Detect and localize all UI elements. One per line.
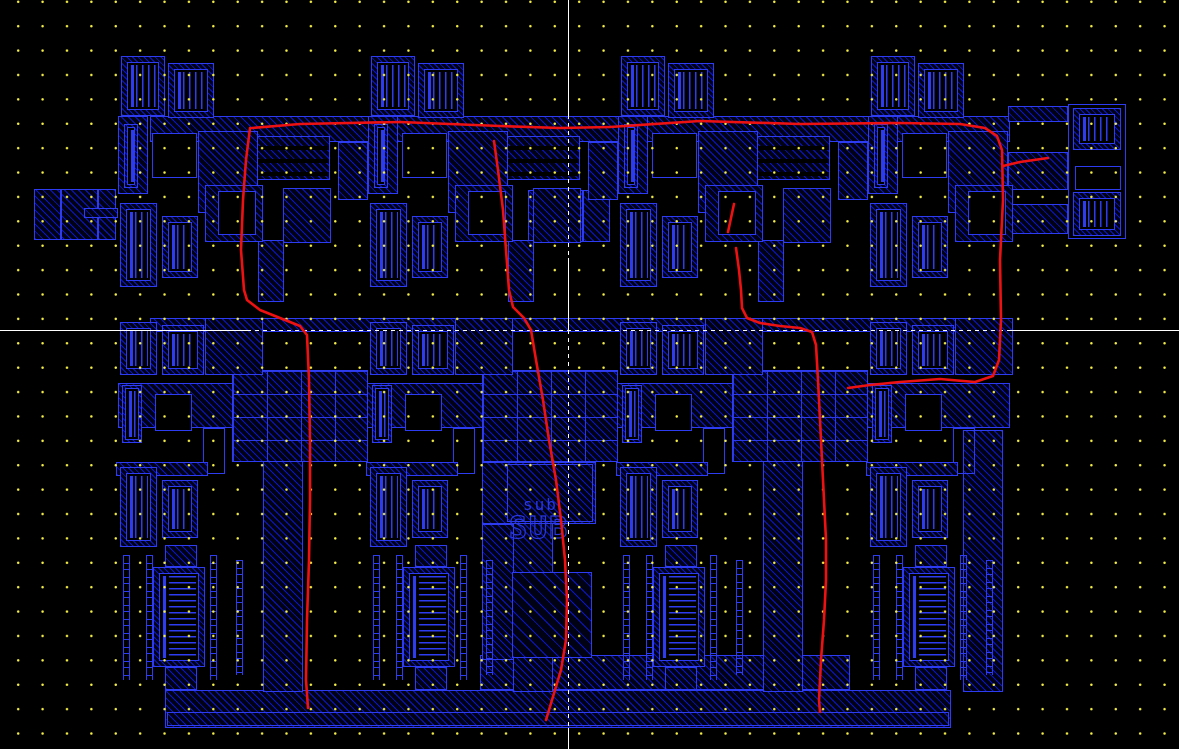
- layout-shape-combV: [418, 63, 464, 118]
- layout-shape-hatch: [783, 188, 831, 243]
- layout-shape-hatch: [1008, 106, 1068, 122]
- layout-shape-dashcol: [146, 555, 153, 680]
- layout-shape-combV: [162, 216, 198, 278]
- layout-shape-busGrid: [482, 370, 618, 462]
- layout-shape-hatch: [338, 142, 368, 200]
- layout-shape-dashcol: [210, 555, 217, 680]
- layout-shape-hatch: [455, 318, 513, 375]
- layout-shape-hatch: [415, 667, 447, 690]
- layout-shape-hatch: [1008, 204, 1068, 234]
- layout-shape-dashcol: [623, 555, 630, 680]
- layout-shape-hatch: [1008, 152, 1068, 190]
- layout-shape-combV: [412, 325, 454, 375]
- layout-shape-combV: [918, 63, 964, 118]
- layout-shape-hatch: [84, 208, 118, 218]
- layout-shape-busGrid: [232, 370, 368, 462]
- layout-shape-combV: [1073, 192, 1121, 236]
- layout-shape-hatch: [915, 667, 947, 690]
- layout-shape-dashcol: [960, 555, 967, 680]
- layout-shape-combV: [168, 63, 214, 118]
- layout-shape-combV: [870, 322, 907, 375]
- layout-shape-combH: [903, 567, 955, 667]
- layout-shape-hatch: [205, 318, 263, 375]
- layout-shape-black: [652, 133, 697, 178]
- crosshair-vertical-segment: [568, 728, 569, 749]
- layout-shape-hatch: [955, 318, 1013, 375]
- layout-shape-hatch: [838, 142, 868, 200]
- layout-shape-combV: [662, 480, 698, 538]
- layout-shape-hatch: [665, 545, 697, 567]
- layout-shape-hatch: [258, 240, 284, 302]
- layout-shape-black: [655, 394, 692, 431]
- layout-shape-dashcol: [486, 560, 493, 675]
- layout-shape-combV: [621, 56, 665, 116]
- layout-shape-hatch: [763, 430, 803, 692]
- layout-shape-hatch: [758, 240, 784, 302]
- layout-shape-dashcol: [646, 555, 653, 680]
- layout-shape-combV: [120, 203, 157, 287]
- layout-shape-combH: [403, 567, 455, 667]
- layout-shape-combVn: [874, 124, 888, 188]
- layout-shape-black: [902, 133, 947, 178]
- layout-shape-busH: [256, 136, 330, 180]
- layout-shape-combV: [412, 216, 448, 278]
- layout-shape-combV: [912, 325, 954, 375]
- layout-shape-combH: [653, 567, 705, 667]
- layout-shape-black: [968, 191, 1006, 235]
- layout-shape-combV: [162, 480, 198, 538]
- layout-shape-outline: [167, 712, 949, 726]
- layout-shape-black: [718, 191, 756, 235]
- layout-shape-combV: [620, 203, 657, 287]
- layout-shape-dashcol: [396, 555, 403, 680]
- layout-shape-hatch: [415, 545, 447, 567]
- layout-shape-dashcol: [896, 555, 903, 680]
- layout-shape-hatch: [588, 142, 618, 200]
- layout-shape-combV: [912, 216, 948, 278]
- layout-shape-combV: [668, 63, 714, 118]
- layout-shape-combV: [870, 203, 907, 287]
- layout-editor-canvas[interactable]: subSUB: [0, 0, 1179, 749]
- layout-shape-vline: [582, 191, 584, 241]
- layout-shape-dashcol: [986, 560, 993, 675]
- layout-shape-combV: [370, 203, 407, 287]
- layout-shape-black: [905, 394, 942, 431]
- layout-shape-black: [1075, 166, 1121, 190]
- layout-shape-combVn: [124, 124, 138, 188]
- layout-shape-black: [402, 133, 447, 178]
- layout-shape-combV: [120, 322, 157, 375]
- layout-shape-combV: [162, 325, 204, 375]
- layout-shape-hatch: [263, 430, 303, 692]
- layout-shape-hatch2: [512, 572, 592, 658]
- layout-shape-vline: [60, 190, 62, 239]
- layout-shape-combH: [153, 567, 205, 667]
- layout-shape-dashcol: [460, 555, 467, 680]
- crosshair-horizontal-segment: [1008, 330, 1179, 331]
- layout-label-sub: SUB: [509, 514, 569, 544]
- layout-shape-combV: [121, 56, 165, 116]
- layout-shape-black: [405, 394, 442, 431]
- layout-shape-combV: [662, 325, 704, 375]
- layout-shape-combV: [1073, 108, 1121, 150]
- layout-shape-black: [152, 133, 197, 178]
- layout-shape-combV: [912, 480, 948, 538]
- layout-shape-dashcol: [710, 555, 717, 680]
- layout-shape-busH: [756, 136, 830, 180]
- layout-shape-combV: [370, 322, 407, 375]
- layout-shape-combV: [620, 467, 657, 547]
- layout-shape-combVn: [872, 385, 892, 443]
- layout-shape-combV: [120, 467, 157, 547]
- layout-shape-combV: [370, 467, 407, 547]
- layout-shape-dashcol: [373, 555, 380, 680]
- layout-shape-dashcol: [123, 555, 130, 680]
- layout-shape-dashcol: [873, 555, 880, 680]
- layout-shape-black: [218, 191, 256, 235]
- layout-shape-combV: [371, 56, 415, 116]
- layout-shape-hatch: [283, 188, 331, 243]
- layout-shape-busH: [506, 136, 580, 180]
- layout-shape-hatch: [665, 667, 697, 690]
- layout-shape-black: [155, 394, 192, 431]
- layout-shape-dashcol: [736, 560, 743, 675]
- layout-shape-hatch: [508, 240, 534, 302]
- layout-shape-hatch: [533, 188, 581, 243]
- layout-shape-combV: [870, 467, 907, 547]
- layout-shape-combV: [412, 480, 448, 538]
- layout-shape-combV: [620, 322, 657, 375]
- layout-shape-combVn: [122, 385, 142, 443]
- layout-shape-combV: [662, 216, 698, 278]
- layout-shape-hatch: [165, 667, 197, 690]
- layout-shape-busGrid: [732, 370, 868, 462]
- crosshair-vertical-segment: [568, 0, 569, 115]
- layout-shape-combVn: [372, 385, 392, 443]
- layout-shape-black: [468, 191, 506, 235]
- layout-shape-combVn: [374, 124, 388, 188]
- layout-shape-hatch: [915, 545, 947, 567]
- layout-shape-hatch: [705, 318, 763, 375]
- layout-shape-hatch: [165, 545, 197, 567]
- layout-shape-combVn: [624, 124, 638, 188]
- layout-shape-combVn: [622, 385, 642, 443]
- layout-shape-combV: [871, 56, 915, 116]
- layout-shape-dashcol: [236, 560, 243, 675]
